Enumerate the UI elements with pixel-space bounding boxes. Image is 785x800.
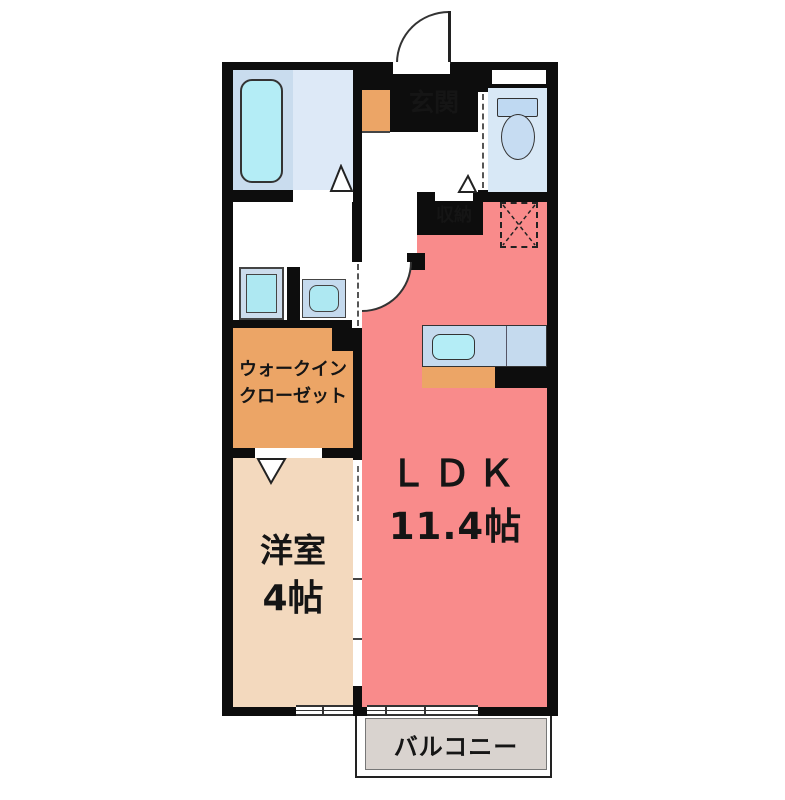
kitchen-cabinet-icon	[422, 367, 495, 388]
hallway-floor	[362, 192, 417, 262]
bedroom-label: 洋室 4帖	[236, 528, 350, 624]
washroom-sink-bowl	[309, 285, 339, 312]
ldk-name: ＬＤＫ	[364, 448, 547, 500]
window-tick	[322, 705, 324, 715]
kitchen-counter-divider	[506, 326, 507, 366]
kitchen-sink-icon	[432, 334, 475, 360]
toilet-sliding-door	[478, 92, 488, 190]
ldk-window	[367, 705, 478, 716]
washing-machine-icon	[239, 267, 284, 320]
storage-door-icon	[456, 174, 479, 194]
balcony-label: バルコニー	[394, 727, 519, 762]
entrance-door-leaf-icon	[448, 11, 451, 64]
window-tick	[424, 705, 426, 715]
ldk-size: 11.4帖	[364, 500, 547, 554]
toilet-bowl-icon	[501, 114, 535, 160]
sliding-door-track	[357, 466, 359, 521]
toilet-window	[492, 70, 546, 84]
shoe-cabinet-icon	[362, 90, 390, 133]
floor-plan: 玄関 収納 バルコニー ウォークイン	[0, 0, 785, 800]
washing-machine-drum	[246, 274, 277, 313]
entrance-label: 玄関	[409, 83, 459, 119]
washroom-sink-icon	[302, 279, 346, 318]
bedroom-window	[296, 705, 353, 716]
bathroom-door-icon	[329, 164, 354, 193]
entrance-door-swing-arc-icon	[396, 11, 449, 63]
washroom-wall-stub	[287, 267, 300, 320]
kitchen-wall-block	[495, 367, 547, 388]
walk-in-closet-label-line1: ウォークイン	[233, 356, 353, 383]
walk-in-closet-label: ウォークイン クローゼット	[233, 356, 353, 410]
bathtub-icon	[240, 79, 283, 183]
ldk-label: ＬＤＫ 11.4帖	[364, 448, 547, 554]
entrance-door-opening	[393, 62, 450, 74]
walk-in-closet-label-line2: クローゼット	[233, 383, 353, 410]
closet-door-icon	[256, 457, 287, 486]
bedroom-name: 洋室	[236, 528, 350, 574]
bedroom-size: 4帖	[236, 574, 350, 624]
storage-label: 収納	[436, 201, 472, 227]
closet-wall-notch	[332, 328, 353, 351]
balcony-floor: バルコニー	[365, 718, 547, 770]
refrigerator-space-icon	[500, 202, 538, 248]
window-tick	[385, 705, 387, 715]
